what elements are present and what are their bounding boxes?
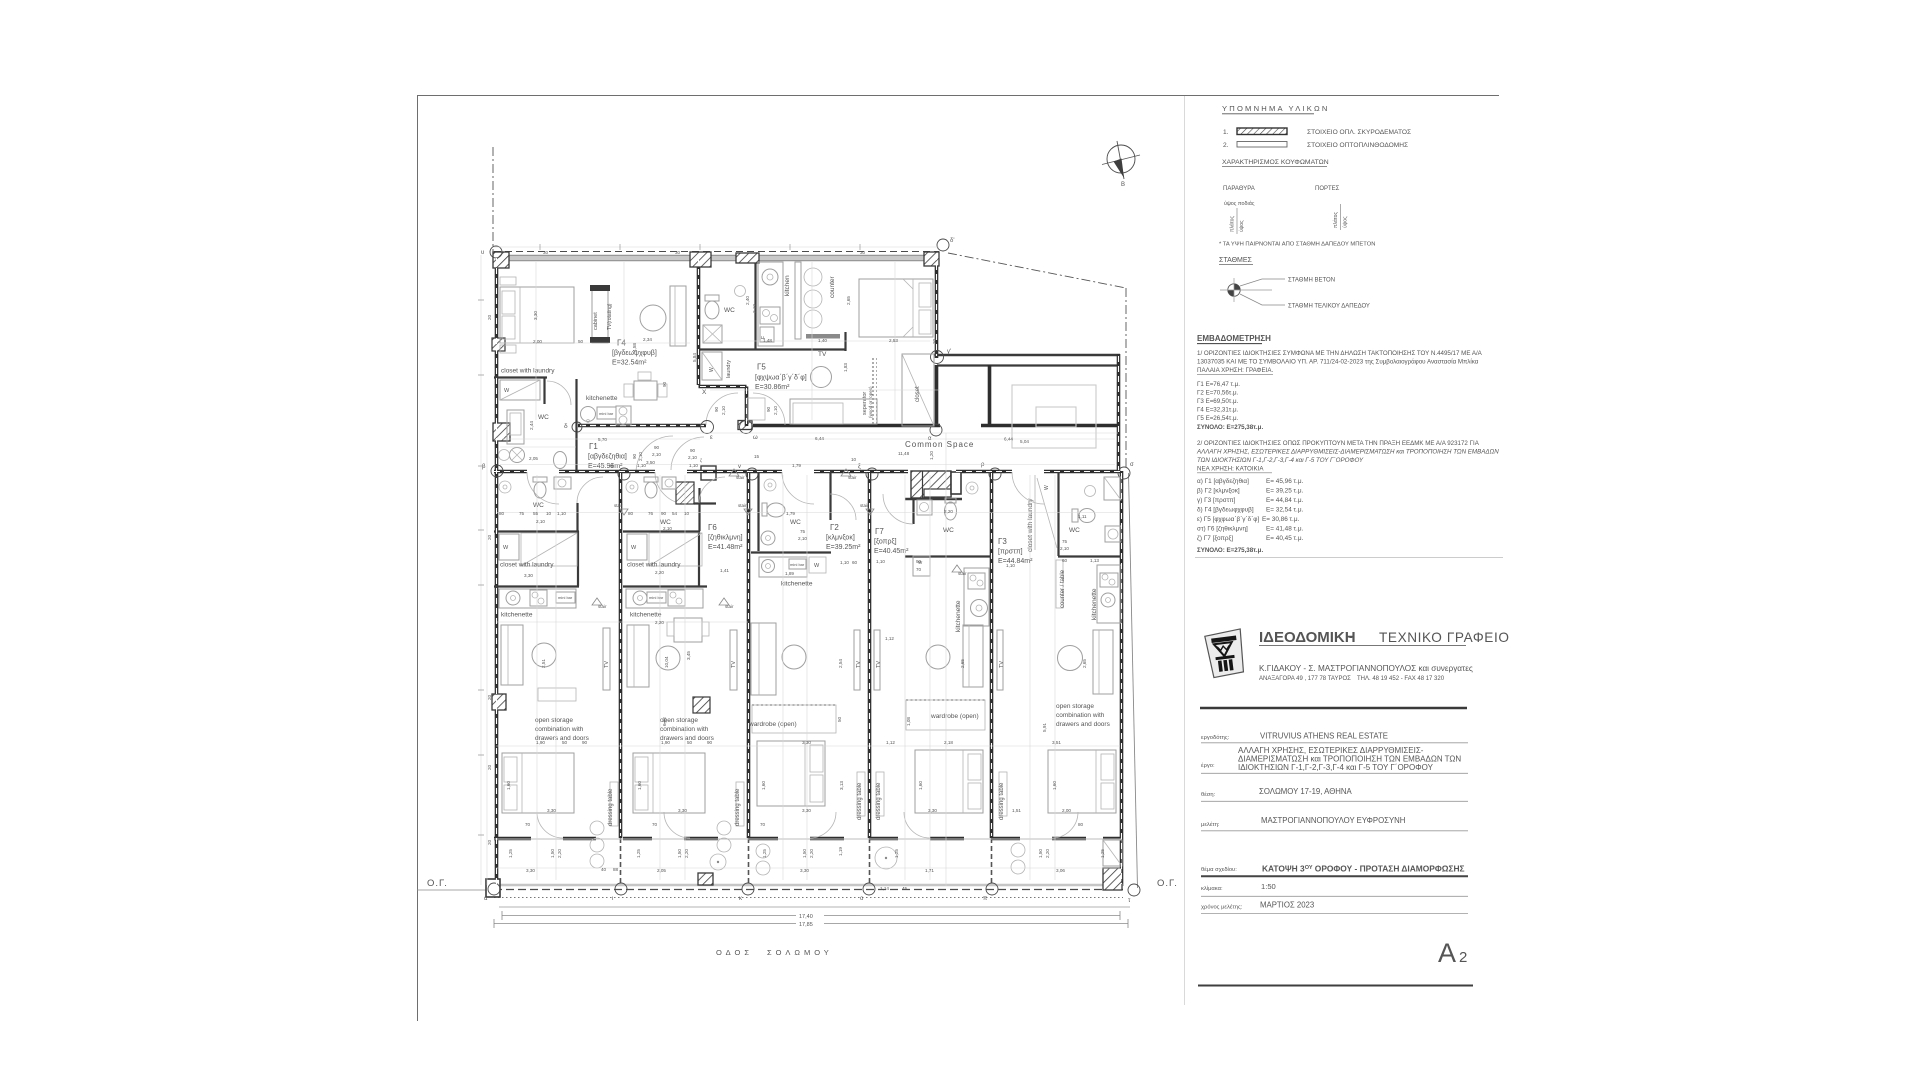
svg-text:dressing table: dressing table — [999, 782, 1005, 820]
svg-text:3,30: 3,30 — [928, 808, 937, 813]
svg-text:30: 30 — [675, 250, 681, 255]
svg-text:75: 75 — [1062, 539, 1068, 544]
svg-text:cabinet: cabinet — [593, 312, 599, 330]
svg-text:10: 10 — [851, 457, 857, 462]
svg-text:1,89: 1,89 — [785, 571, 794, 576]
svg-text:TV: TV — [731, 661, 737, 668]
svg-text:1,19: 1,19 — [838, 847, 843, 856]
svg-text:20: 20 — [487, 534, 492, 540]
svg-text:1,12: 1,12 — [886, 740, 895, 745]
svg-text:VITRUVIUS ATHENS REAL ESTATE: VITRUVIUS ATHENS REAL ESTATE — [1260, 732, 1388, 741]
svg-text:3,30: 3,30 — [533, 311, 538, 320]
svg-text:60: 60 — [852, 560, 858, 565]
svg-text:1,60: 1,60 — [1052, 781, 1057, 790]
svg-text:20: 20 — [487, 839, 492, 845]
svg-text:stair: stair — [725, 604, 734, 609]
svg-text:δ': δ' — [950, 238, 955, 244]
svg-text:[ζηθικλμνη]: [ζηθικλμνη] — [708, 535, 743, 542]
svg-text:2,20: 2,20 — [684, 849, 689, 858]
svg-text:17,85: 17,85 — [799, 922, 813, 928]
svg-text:* ΤΑ ΥΨΗ ΠΑΙΡΝΟΝΤΑΙ ΑΠΟ ΣΤΑΘΜΗ: * ΤΑ ΥΨΗ ΠΑΙΡΝΟΝΤΑΙ ΑΠΟ ΣΤΑΘΜΗ ΔΑΠΕΔΟΥ Μ… — [1219, 242, 1375, 248]
svg-text:wardrobe (open): wardrobe (open) — [930, 713, 979, 720]
svg-text:ΙΔΙΟΚΤΗΣΙΩΝ Γ-1,Γ-2,Γ-3,Γ-4 κα: ΙΔΙΟΚΤΗΣΙΩΝ Γ-1,Γ-2,Γ-3,Γ-4 και Γ-5 ΤΟΥ … — [1238, 763, 1434, 772]
svg-text:Γ1 Ε=76,47 τ.μ.: Γ1 Ε=76,47 τ.μ. — [1197, 381, 1240, 388]
svg-text:50: 50 — [578, 339, 584, 344]
svg-text:2,65: 2,65 — [846, 296, 851, 305]
svg-text:X: X — [702, 389, 707, 396]
svg-text:β) Γ2 [κλμνξοκ]: β) Γ2 [κλμνξοκ] — [1197, 488, 1240, 495]
svg-text:laundry: laundry — [726, 360, 732, 378]
svg-text:2,18: 2,18 — [944, 740, 953, 745]
svg-text:2,10: 2,10 — [663, 526, 672, 531]
svg-text:ΝΕΑ ΧΡΗΣΗ: ΚΑΤΟΙΚΙΑ: ΝΕΑ ΧΡΗΣΗ: ΚΑΤΟΙΚΙΑ — [1197, 466, 1264, 473]
svg-text:1,50: 1,50 — [550, 849, 555, 858]
svg-text:closet: closet — [915, 386, 921, 402]
svg-text:ΣΟΛΩΜΟΥ 17-19, ΑΘΗΝΑ: ΣΟΛΩΜΟΥ 17-19, ΑΘΗΝΑ — [1259, 787, 1353, 796]
svg-text:dressing table: dressing table — [608, 788, 614, 826]
svg-text:1,10: 1,10 — [876, 559, 885, 564]
svg-text:1,41: 1,41 — [720, 568, 729, 573]
svg-text:ΜΑΡΤΙΟΣ 2023: ΜΑΡΤΙΟΣ 2023 — [1260, 901, 1314, 910]
svg-text:90: 90 — [690, 448, 696, 453]
svg-text:76: 76 — [648, 511, 654, 516]
svg-text:έργο:: έργο: — [1201, 762, 1215, 769]
svg-text:closet with laundry: closet with laundry — [501, 368, 555, 375]
svg-text:1,60: 1,60 — [637, 781, 642, 790]
svg-text:20: 20 — [487, 694, 492, 700]
svg-text:1,79: 1,79 — [792, 463, 801, 468]
svg-text:1,11: 1,11 — [1078, 514, 1087, 519]
svg-text:2,10: 2,10 — [688, 455, 697, 460]
svg-text:kitchenette: kitchenette — [781, 581, 813, 588]
svg-text:2,05: 2,05 — [529, 456, 538, 461]
svg-text:stair: stair — [860, 503, 869, 508]
svg-text:11,48: 11,48 — [898, 451, 910, 456]
svg-text:ΟΔΟΣ: ΟΔΟΣ — [716, 948, 753, 957]
svg-text:θέση:: θέση: — [1201, 791, 1216, 798]
svg-text:90: 90 — [654, 445, 660, 450]
svg-text:drawers and doors: drawers and doors — [1056, 721, 1111, 728]
svg-text:1,25: 1,25 — [1100, 849, 1105, 858]
svg-text:60: 60 — [1062, 558, 1068, 563]
svg-text:combination with: combination with — [1056, 712, 1105, 719]
svg-text:3,30: 3,30 — [678, 808, 687, 813]
svg-text:2.: 2. — [1223, 142, 1229, 149]
svg-text:Γ5 Ε=26,54τ.μ.: Γ5 Ε=26,54τ.μ. — [1197, 415, 1239, 422]
svg-text:1.: 1. — [1223, 129, 1229, 136]
svg-text:kitchenette: kitchenette — [1091, 588, 1098, 620]
svg-text:3,30: 3,30 — [802, 740, 811, 745]
svg-text:Ε=44.84m²: Ε=44.84m² — [998, 558, 1033, 565]
svg-text:90: 90 — [582, 740, 588, 745]
svg-text:17,40: 17,40 — [799, 914, 813, 920]
svg-text:1,12: 1,12 — [885, 636, 894, 641]
svg-text:δ) Γ4 [βγδεωφχφυβ]: δ) Γ4 [βγδεωφχφυβ] — [1197, 507, 1254, 514]
svg-text:2,51: 2,51 — [541, 659, 546, 668]
svg-text:πλάτος: πλάτος — [1332, 212, 1339, 228]
svg-text:ΣΥΝΟΛΟ: Ε=275,38τ.μ.: ΣΥΝΟΛΟ: Ε=275,38τ.μ. — [1197, 547, 1263, 554]
svg-text:20: 20 — [487, 314, 492, 320]
svg-text:π: π — [983, 896, 987, 902]
svg-text:stair: stair — [736, 475, 745, 480]
svg-text:2,10: 2,10 — [638, 452, 643, 461]
svg-text:W: W — [503, 545, 509, 551]
svg-text:ΑΛΛΑΓΗ ΧΡΗΣΗΣ, ΕΣΩΤΕΡΙΚΕΣ ΔΙΑΡ: ΑΛΛΑΓΗ ΧΡΗΣΗΣ, ΕΣΩΤΕΡΙΚΕΣ ΔΙΑΡΡΥΘΜΙΣΕΙΣ-… — [1196, 449, 1499, 456]
svg-text:30: 30 — [860, 250, 866, 255]
svg-text:2,44: 2,44 — [529, 421, 534, 430]
svg-text:70: 70 — [760, 822, 766, 827]
svg-text:80: 80 — [628, 511, 634, 516]
svg-text:1,60: 1,60 — [918, 781, 923, 790]
svg-text:5,91: 5,91 — [1042, 723, 1047, 732]
svg-text:2,54: 2,54 — [838, 659, 843, 668]
svg-text:B: B — [1121, 182, 1125, 188]
svg-text:90: 90 — [662, 381, 667, 387]
svg-text:TV(rotating): TV(rotating) — [607, 303, 613, 330]
svg-text:1,40: 1,40 — [818, 338, 827, 343]
svg-text:80: 80 — [499, 511, 505, 516]
svg-text:ΣΤΑΘΜΕΣ: ΣΤΑΘΜΕΣ — [1219, 257, 1253, 264]
svg-text:W: W — [1044, 485, 1050, 490]
svg-text:1:50: 1:50 — [1261, 882, 1276, 891]
svg-text:counter: counter — [829, 275, 836, 298]
svg-text:1,71: 1,71 — [925, 868, 934, 873]
svg-text:50: 50 — [837, 716, 842, 722]
svg-text:3,30: 3,30 — [526, 868, 535, 873]
svg-text:ύψος: ύψος — [1238, 220, 1245, 232]
svg-text:2,40: 2,40 — [745, 296, 750, 305]
svg-text:2,65: 2,65 — [1082, 659, 1087, 668]
svg-text:ΠΑΛΑΙΑ ΧΡΗΣΗ: ΓΡΑΦΕΙΑ.: ΠΑΛΑΙΑ ΧΡΗΣΗ: ΓΡΑΦΕΙΑ. — [1197, 367, 1273, 374]
svg-text:mini bar: mini bar — [649, 595, 664, 600]
svg-text:75: 75 — [519, 511, 525, 516]
svg-text:(wood or ropes): (wood or ropes) — [868, 386, 873, 418]
svg-text:ΜΑΣΤΡΟΓΙΑΝΝΟΠΟΥΛΟΥ ΕΥΦΡΟΣΥΝΗ: ΜΑΣΤΡΟΓΙΑΝΝΟΠΟΥΛΟΥ ΕΥΦΡΟΣΥΝΗ — [1261, 816, 1405, 825]
svg-text:Ε= 41,48 τ.μ.: Ε= 41,48 τ.μ. — [1266, 526, 1304, 533]
svg-text:1,60: 1,60 — [506, 781, 511, 790]
svg-text:2,20: 2,20 — [655, 620, 664, 625]
svg-text:W: W — [504, 388, 510, 394]
svg-text:kitchenette: kitchenette — [630, 612, 662, 619]
svg-text:2,10: 2,10 — [652, 452, 661, 457]
svg-text:πλάτος: πλάτος — [1229, 216, 1236, 232]
svg-text:Γ2 Ε=70,56τ.μ.: Γ2 Ε=70,56τ.μ. — [1197, 390, 1239, 397]
svg-text:θέμα σχεδίου:: θέμα σχεδίου: — [1201, 866, 1237, 873]
svg-text:2,10: 2,10 — [721, 406, 726, 415]
svg-text:ε: ε — [710, 435, 713, 441]
svg-text:TV: TV — [876, 661, 882, 668]
svg-text:ΣΤΑΘΜΗ ΤΕΛΙΚΟΥ ΔΑΠΕΔΟΥ: ΣΤΑΘΜΗ ΤΕΛΙΚΟΥ ΔΑΠΕΔΟΥ — [1288, 304, 1370, 310]
svg-text:stair: stair — [614, 503, 623, 508]
svg-text:ω: ω — [753, 435, 758, 441]
svg-text:TV: TV — [999, 661, 1005, 668]
svg-text:2,20: 2,20 — [655, 570, 664, 575]
svg-text:2,20: 2,20 — [557, 849, 562, 858]
svg-text:mini bar: mini bar — [558, 595, 573, 600]
svg-text:ΙΔΕΟΔΟΜΙΚΗ: ΙΔΕΟΔΟΜΙΚΗ — [1259, 629, 1356, 646]
svg-text:3,45: 3,45 — [686, 651, 691, 660]
svg-text:2,10: 2,10 — [773, 406, 778, 415]
svg-text:50: 50 — [687, 740, 693, 745]
svg-text:Γ4 Ε=32,31τ.μ.: Γ4 Ε=32,31τ.μ. — [1197, 407, 1239, 414]
svg-text:10,04: 10,04 — [664, 656, 669, 668]
svg-text:2,20: 2,20 — [944, 509, 953, 514]
svg-text:2,10: 2,10 — [536, 519, 545, 524]
svg-text:δ: δ — [564, 423, 568, 430]
svg-text:WC: WC — [790, 519, 801, 526]
svg-text:1,51: 1,51 — [1012, 808, 1021, 813]
svg-text:2,10: 2,10 — [752, 304, 757, 313]
svg-text:6,44: 6,44 — [815, 436, 824, 441]
svg-text:ΤΗΛ. 48 19 452 - FAX 48 17 320: ΤΗΛ. 48 19 452 - FAX 48 17 320 — [1357, 676, 1445, 682]
svg-text:1,13: 1,13 — [1090, 558, 1099, 563]
svg-text:3,13: 3,13 — [839, 781, 844, 790]
svg-text:5,84: 5,84 — [692, 353, 697, 362]
svg-text:ζ) Γ7 [ξοπρξ]: ζ) Γ7 [ξοπρξ] — [1197, 535, 1233, 542]
svg-text:ΣΤΑΘΜΗ ΒΕΤΟΝ: ΣΤΑΘΜΗ ΒΕΤΟΝ — [1288, 278, 1335, 284]
svg-text:Ε= 39,25 τ.μ.: Ε= 39,25 τ.μ. — [1266, 488, 1304, 495]
svg-text:1,10: 1,10 — [637, 463, 646, 468]
svg-text:TV: TV — [856, 661, 862, 668]
svg-text:3,30: 3,30 — [547, 808, 556, 813]
svg-text:stair: stair — [738, 503, 747, 508]
svg-text:1,25: 1,25 — [762, 849, 767, 858]
svg-text:χρόνος μελέτης:: χρόνος μελέτης: — [1201, 904, 1243, 911]
svg-text:2,00: 2,00 — [1062, 808, 1071, 813]
svg-text:dressing table: dressing table — [857, 782, 863, 820]
svg-text:W: W — [814, 563, 820, 569]
svg-text:combination with: combination with — [660, 726, 709, 733]
svg-text:1,90: 1,90 — [661, 740, 670, 745]
svg-text:[φχψωα΄β΄γ΄δ΄φ]: [φχψωα΄β΄γ΄δ΄φ] — [755, 375, 807, 382]
svg-text:WC: WC — [724, 307, 735, 314]
svg-text:WC: WC — [943, 527, 954, 534]
svg-text:ΚΑΤΟΨΗ 3ΟΥ ΟΡΟΦΟΥ - ΠΡΟΤΑΣΗ ΔΙ: ΚΑΤΟΨΗ 3ΟΥ ΟΡΟΦΟΥ - ΠΡΟΤΑΣΗ ΔΙΑΜΟΡΦΩΣΗΣ — [1262, 864, 1465, 874]
svg-text:WC: WC — [533, 502, 544, 509]
svg-text:ΕΜΒΑΔΟΜΕΤΡΗΣΗ: ΕΜΒΑΔΟΜΕΤΡΗΣΗ — [1197, 334, 1271, 343]
svg-text:2,10: 2,10 — [798, 536, 807, 541]
svg-text:Ε=40.45m²: Ε=40.45m² — [874, 548, 909, 555]
svg-text:6,92: 6,92 — [662, 717, 667, 726]
svg-text:3,51: 3,51 — [1052, 740, 1061, 745]
svg-text:70: 70 — [916, 567, 922, 572]
svg-text:90: 90 — [766, 406, 771, 412]
svg-text:ΣΟΛΩΜΟΥ: ΣΟΛΩΜΟΥ — [767, 948, 833, 957]
svg-text:Common Space: Common Space — [905, 440, 974, 449]
svg-text:1,50: 1,50 — [1038, 849, 1043, 858]
svg-text:13037035 ΚΑΙ ΜΕ ΤΟ ΣΥΜΒΟΛΑΙΟ Υ: 13037035 ΚΑΙ ΜΕ ΤΟ ΣΥΜΒΟΛΑΙΟ ΥΠ. ΑΡ. 711… — [1197, 359, 1479, 366]
svg-text:3,50: 3,50 — [646, 460, 655, 465]
svg-text:[αβγδεζηθια]: [αβγδεζηθια] — [588, 454, 627, 461]
svg-text:75: 75 — [800, 529, 806, 534]
svg-text:kitchenette: kitchenette — [501, 612, 533, 619]
svg-text:Γ3 Ε=69,50τ.μ.: Γ3 Ε=69,50τ.μ. — [1197, 398, 1239, 405]
svg-text:ύψος ποδιάς: ύψος ποδιάς — [1224, 200, 1255, 207]
svg-text:Ε= 45,96 τ.μ.: Ε= 45,96 τ.μ. — [1266, 478, 1304, 485]
svg-text:20: 20 — [487, 764, 492, 770]
svg-text:σ: σ — [1130, 462, 1134, 468]
svg-text:Γ5: Γ5 — [757, 363, 766, 372]
svg-text:ύψος: ύψος — [1342, 216, 1349, 228]
svg-text:1,50: 1,50 — [802, 849, 807, 858]
svg-text:dressing table: dressing table — [735, 788, 741, 826]
svg-text:closet with laundry: closet with laundry — [500, 562, 554, 569]
svg-text:1,10: 1,10 — [840, 560, 849, 565]
svg-text:Ε=45.96m²: Ε=45.96m² — [588, 463, 623, 470]
svg-text:1,25: 1,25 — [508, 849, 513, 858]
svg-text:4,58: 4,58 — [632, 343, 637, 352]
svg-text:Ε=32.54m²: Ε=32.54m² — [612, 360, 647, 367]
svg-text:10: 10 — [546, 511, 552, 516]
svg-text:1,25: 1,25 — [894, 849, 899, 858]
svg-text:55: 55 — [533, 511, 539, 516]
svg-text:1,50: 1,50 — [677, 849, 682, 858]
svg-text:Ο.Γ.: Ο.Γ. — [427, 878, 448, 889]
svg-text:1,14: 1,14 — [880, 886, 889, 891]
svg-text:2,05: 2,05 — [657, 868, 666, 873]
svg-text:closet with laundry: closet with laundry — [627, 562, 681, 569]
svg-text:counter / table: counter / table — [1060, 569, 1066, 608]
svg-text:ΣΤΟΙΧΕΙΟ ΟΠΛ. ΣΚΥΡΟΔΕΜΑΤΟΣ: ΣΤΟΙΧΕΙΟ ΟΠΛ. ΣΚΥΡΟΔΕΜΑΤΟΣ — [1307, 129, 1411, 136]
svg-text:kitchenette: kitchenette — [586, 395, 618, 402]
svg-text:2/ ΟΡΙΖΟΝΤΙΕΣ ΙΔΙΟΚΤΗΣΙΕΣ ΟΠΩΣ: 2/ ΟΡΙΖΟΝΤΙΕΣ ΙΔΙΟΚΤΗΣΙΕΣ ΟΠΩΣ ΠΡΟΚΥΠΤΟΥ… — [1197, 440, 1480, 447]
svg-text:ΣΥΝΟΛΟ: Ε=275,38τ.μ.: ΣΥΝΟΛΟ: Ε=275,38τ.μ. — [1197, 424, 1263, 431]
svg-text:dressing table: dressing table — [876, 782, 882, 820]
svg-text:3,06: 3,06 — [1056, 868, 1065, 873]
svg-text:α: α — [484, 896, 488, 902]
svg-text:ΤΩΝ ΙΔΙΟΚΤΗΣΙΩΝ Γ-1,Γ-2,Γ-3,Γ-: ΤΩΝ ΙΔΙΟΚΤΗΣΙΩΝ Γ-1,Γ-2,Γ-3,Γ-4 και Γ-5 … — [1197, 457, 1364, 464]
svg-text:90: 90 — [632, 453, 637, 459]
svg-text:[κλμνξοκ]: [κλμνξοκ] — [826, 535, 855, 542]
svg-text:Ε= 44,84 τ.μ.: Ε= 44,84 τ.μ. — [1266, 497, 1304, 504]
svg-text:ΧΑΡΑΚΤΗΡΙΣΜΟΣ ΚΟΥΦΩΜΑΤΩΝ: ΧΑΡΑΚΤΗΡΙΣΜΟΣ ΚΟΥΦΩΜΑΤΩΝ — [1222, 159, 1329, 166]
svg-text:90: 90 — [661, 511, 667, 516]
svg-text:2: 2 — [1459, 949, 1467, 966]
svg-text:WC: WC — [1069, 527, 1080, 534]
svg-text:ΣΤΟΙΧΕΙΟ ΟΠΤΟΠΛΙΝΘΟΔΟΜΗΣ: ΣΤΟΙΧΕΙΟ ΟΠΤΟΠΛΙΝΘΟΔΟΜΗΣ — [1307, 142, 1408, 149]
svg-text:ΥΠΟΜΝΗΜΑ ΥΛΙΚΩΝ: ΥΠΟΜΝΗΜΑ ΥΛΙΚΩΝ — [1222, 104, 1330, 113]
svg-text:45: 45 — [902, 886, 908, 891]
svg-text:[ξοπρξ]: [ξοπρξ] — [874, 539, 897, 546]
svg-text:1,83: 1,83 — [843, 363, 848, 372]
svg-text:50: 50 — [562, 740, 568, 745]
svg-text:A: A — [1438, 938, 1456, 968]
svg-text:2,20: 2,20 — [1045, 849, 1050, 858]
svg-text:1,20: 1,20 — [929, 451, 934, 460]
svg-text:γ) Γ3 [πρστπ]: γ) Γ3 [πρστπ] — [1197, 497, 1236, 504]
svg-text:mini bar: mini bar — [599, 411, 614, 416]
svg-text:W: W — [631, 545, 637, 551]
svg-text:1,79: 1,79 — [786, 511, 795, 516]
svg-text:1,48: 1,48 — [763, 338, 772, 343]
svg-text:2,53: 2,53 — [889, 338, 898, 343]
svg-text:2,20: 2,20 — [809, 849, 814, 858]
svg-text:Ε= 30,86 τ.μ.: Ε= 30,86 τ.μ. — [1262, 516, 1300, 523]
svg-text:kitchenette: kitchenette — [955, 600, 962, 632]
svg-text:2,34: 2,34 — [643, 337, 652, 342]
svg-text:3,30: 3,30 — [802, 808, 811, 813]
svg-text:ΤΕΧΝΙΚΟ ΓΡΑΦΕΙΟ: ΤΕΧΝΙΚΟ ΓΡΑΦΕΙΟ — [1379, 630, 1510, 645]
svg-text:1,10: 1,10 — [1006, 563, 1015, 568]
svg-text:Ε=39.25m²: Ε=39.25m² — [826, 544, 861, 551]
svg-text:1,25: 1,25 — [636, 849, 641, 858]
svg-text:Γ7: Γ7 — [875, 527, 884, 536]
svg-text:Γ3: Γ3 — [998, 537, 1007, 546]
svg-text:40: 40 — [601, 867, 607, 872]
svg-text:90: 90 — [707, 740, 713, 745]
svg-text:6,44: 6,44 — [1004, 437, 1013, 442]
svg-text:TV: TV — [604, 661, 610, 668]
svg-text:κλίμακα:: κλίμακα: — [1201, 886, 1223, 892]
svg-text:3,30: 3,30 — [800, 868, 809, 873]
svg-text:open storage: open storage — [1056, 703, 1094, 710]
svg-text:1,10: 1,10 — [689, 463, 698, 468]
svg-text:WC: WC — [660, 519, 671, 526]
svg-text:W: W — [709, 367, 715, 372]
svg-text:stair: stair — [598, 604, 607, 609]
svg-text:α) Γ1 [αβγδεζηθια]: α) Γ1 [αβγδεζηθια] — [1197, 478, 1249, 485]
svg-text:closet with laundry: closet with laundry — [1027, 498, 1034, 552]
svg-text:Γ6: Γ6 — [708, 523, 717, 532]
svg-text:3,30: 3,30 — [524, 573, 533, 578]
svg-text:1/ ΟΡΙΖΟΝΤΙΕΣ ΙΔΙΟΚΤΗΣΙΕΣ ΣΥΜΦ: 1/ ΟΡΙΖΟΝΤΙΕΣ ΙΔΙΟΚΤΗΣΙΕΣ ΣΥΜΦΩΝΑ ΜΕ ΤΗΝ… — [1197, 350, 1483, 357]
svg-text:70: 70 — [652, 822, 658, 827]
svg-text:2,65: 2,65 — [960, 659, 965, 668]
svg-text:WC: WC — [538, 414, 549, 421]
svg-text:2,00: 2,00 — [533, 339, 542, 344]
svg-text:ΠΑΡΑΘΥΡΑ: ΠΑΡΑΘΥΡΑ — [1223, 186, 1255, 192]
svg-text:TV: TV — [818, 351, 827, 358]
svg-text:ΑΝΑΞΑΓΟΡΑ 49 , 177 78 ΤΑΥΡΟΣ: ΑΝΑΞΑΓΟΡΑ 49 , 177 78 ΤΑΥΡΟΣ — [1259, 676, 1351, 682]
svg-text:80: 80 — [1078, 822, 1084, 827]
svg-text:open storage: open storage — [535, 717, 573, 724]
svg-text:90: 90 — [916, 559, 922, 564]
svg-text:mini bar: mini bar — [790, 562, 805, 567]
svg-text:1,60: 1,60 — [761, 781, 766, 790]
svg-text:Ο.Γ.: Ο.Γ. — [1157, 878, 1178, 889]
svg-text:5,70: 5,70 — [598, 437, 607, 442]
svg-text:ε) Γ5 [φχφωα΄β΄γ΄δ΄φ]: ε) Γ5 [φχφωα΄β΄γ΄δ΄φ] — [1197, 516, 1259, 523]
svg-text:15: 15 — [754, 454, 760, 459]
svg-text:εργοδότης:: εργοδότης: — [1201, 734, 1230, 741]
svg-text:20: 20 — [932, 338, 937, 344]
svg-text:88: 88 — [613, 867, 619, 872]
svg-text:Γ1: Γ1 — [589, 442, 598, 451]
svg-text:wardrobe (open): wardrobe (open) — [748, 721, 797, 728]
svg-text:Ε= 40,45 τ.μ.: Ε= 40,45 τ.μ. — [1266, 535, 1304, 542]
svg-text:Γ2: Γ2 — [830, 523, 839, 532]
svg-text:stair: stair — [848, 475, 857, 480]
svg-text:kitchen: kitchen — [784, 275, 791, 296]
svg-text:ρ: ρ — [981, 462, 985, 468]
svg-text:μελέτη:: μελέτη: — [1201, 821, 1220, 828]
svg-text:Ε=41.48m²: Ε=41.48m² — [708, 544, 743, 551]
svg-text:combination with: combination with — [535, 726, 584, 733]
svg-text:γ': γ' — [947, 349, 951, 355]
svg-text:-: - — [1349, 631, 1353, 643]
svg-text:β: β — [482, 464, 486, 470]
svg-text:54: 54 — [672, 511, 678, 516]
svg-text:Κ.ΓΙΔΑΚΟΥ - Σ. ΜΑΣΤΡΟΓΙΑΝΝΟΠΟΥ: Κ.ΓΙΔΑΚΟΥ - Σ. ΜΑΣΤΡΟΓΙΑΝΝΟΠΟΥΛΟΣ και συ… — [1259, 664, 1473, 673]
svg-text:υ: υ — [481, 250, 484, 256]
svg-text:1,90: 1,90 — [536, 740, 545, 745]
svg-text:στ) Γ6 [ζηθικλμνη]: στ) Γ6 [ζηθικλμνη] — [1197, 526, 1248, 533]
svg-text:stair: stair — [958, 571, 967, 576]
svg-text:90: 90 — [714, 406, 719, 412]
svg-text:v: v — [738, 464, 741, 470]
svg-text:30: 30 — [543, 250, 549, 255]
svg-text:10: 10 — [684, 511, 690, 516]
